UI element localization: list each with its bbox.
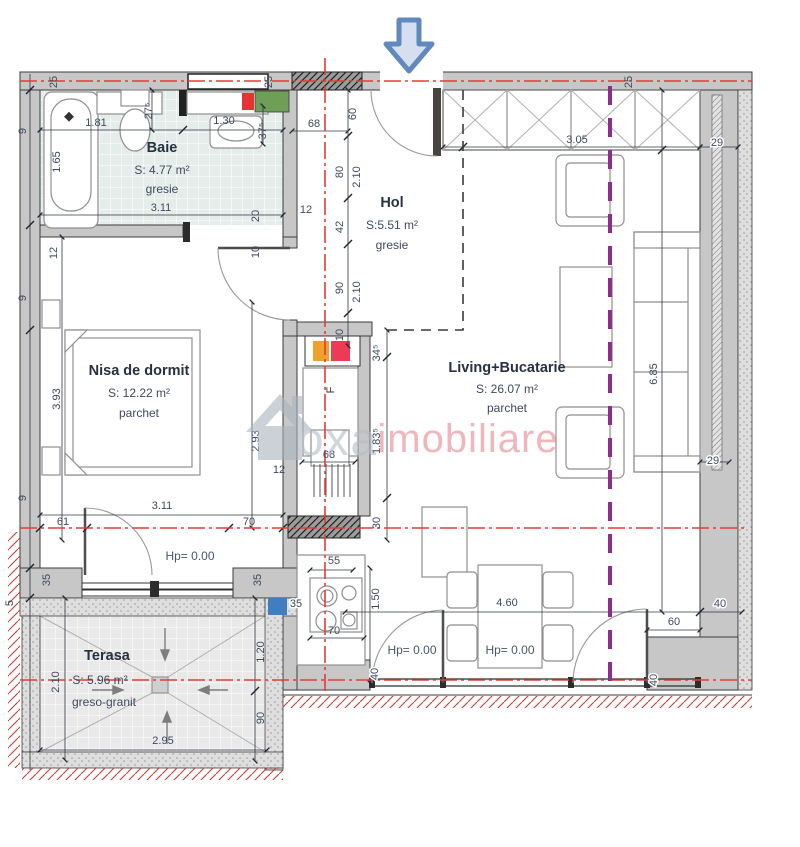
room-area-terasa: S: 5.96 m² (72, 673, 127, 687)
dim-label: 3.11 (152, 500, 173, 512)
room-area-baie: S: 4.77 m² (134, 163, 189, 177)
dim-label: 68 (308, 118, 320, 130)
dim-label: 9 (17, 295, 29, 301)
dim-label: 3.05 (566, 134, 587, 146)
dim-label: 90 (334, 282, 346, 294)
orange-marker (313, 341, 329, 361)
green-marker (255, 91, 289, 112)
dim-label: 35 (41, 574, 53, 586)
room-area-living: S: 26.07 m² (476, 382, 538, 396)
dim-label: 6.85 (648, 363, 660, 384)
dim-label: 27⁵ (143, 103, 155, 120)
floor-plan: F (0, 0, 800, 847)
dim-label: 2.10 (50, 671, 62, 692)
dim-label: 25 (263, 76, 275, 88)
wall-insulation-right (738, 90, 752, 690)
dim-label: 55 (328, 555, 340, 567)
bed (65, 330, 200, 475)
room-name-living: Living+Bucatarie (448, 360, 565, 376)
entrance-door (433, 88, 441, 156)
divider-wall (179, 90, 187, 116)
dim-label: 70 (243, 516, 255, 528)
dim-label: 40 (714, 598, 726, 610)
dim-label: 35 (252, 574, 264, 586)
dim-label: 12 (300, 204, 312, 216)
dim-label: 2.10 (351, 281, 363, 302)
room-area-nisa: S: 12.22 m² (108, 386, 170, 400)
dim-label: 9 (17, 495, 29, 501)
blue-marker (268, 598, 287, 615)
dim-label: 10 (334, 329, 346, 341)
dim-label: 12 (273, 464, 285, 476)
dim-label: 5 (4, 600, 16, 606)
chair (543, 572, 573, 608)
door-jamb (183, 222, 190, 242)
dim-label: 90 (255, 712, 267, 724)
dim-label: 61 (57, 516, 69, 528)
level-label: Hp= 0.00 (165, 549, 214, 563)
dim-label: 1.30 (213, 115, 234, 127)
nightstand (42, 300, 60, 328)
dim-label: 29 (707, 455, 719, 467)
room-name-terasa: Terasa (84, 648, 131, 664)
dim-label: 1.81 (85, 117, 106, 129)
tv-stand (560, 267, 612, 367)
watermark-pink-text: imobiliare (377, 417, 558, 461)
room-floor-nisa: parchet (119, 406, 160, 420)
dim-label: 10 (250, 246, 262, 258)
dim-label: 37⁵ (257, 123, 269, 140)
dim-label: 60 (347, 108, 359, 120)
dim-label: 42 (334, 221, 346, 233)
dim-label: 3.11 (151, 202, 172, 214)
coffee-table (422, 507, 467, 577)
dim-label: 25 (48, 76, 60, 88)
entrance-arrow-icon (386, 20, 432, 71)
watermark-gray-text: oxa (298, 413, 378, 465)
dim-label: 60 (668, 616, 680, 628)
dim-label: 2.95 (152, 735, 173, 747)
radiator (314, 464, 350, 497)
room-floor-hol: gresie (376, 238, 409, 252)
dim-label: 9 (17, 128, 29, 134)
dim-label: 3.93 (51, 388, 63, 409)
dim-label: 12 (48, 247, 60, 259)
dim-label: 25 (623, 76, 635, 88)
sofa (634, 232, 700, 472)
room-name-baie: Baie (147, 140, 178, 156)
dim-label: 40 (648, 674, 660, 686)
dim-label: 70 (328, 625, 340, 637)
dim-label: 35 (290, 598, 302, 610)
nightstand (42, 447, 60, 475)
dim-label: 1.20 (255, 641, 267, 662)
dim-label: 2.10 (351, 166, 363, 187)
chair (447, 625, 477, 661)
dim-label: 4.60 (496, 597, 517, 609)
shaft-f-label: F (325, 386, 337, 393)
red-marker (242, 93, 254, 110)
dim-label: 34⁵ (371, 345, 383, 362)
room-name-nisa: Nisa de dormit (89, 363, 190, 379)
wall-hatch-shaft (288, 516, 360, 538)
level-label: Hp= 0.00 (485, 643, 534, 657)
dim-label: 80 (334, 166, 346, 178)
kitchen-counter (297, 555, 365, 665)
dim-label: 1.65 (51, 151, 63, 172)
room-floor-living: parchet (487, 401, 528, 415)
chair (543, 625, 573, 661)
floor-plan-svg: F (0, 0, 800, 847)
dim-label: 20 (250, 210, 262, 222)
pink-marker (331, 341, 350, 361)
dim-label: 30 (371, 517, 383, 529)
room-name-hol: Hol (380, 195, 403, 211)
room-floor-terasa: greso-granit (72, 695, 137, 709)
level-label: Hp= 0.00 (387, 643, 436, 657)
dim-label: 1.50 (370, 588, 382, 609)
chair (447, 572, 477, 608)
room-floor-baie: gresie (146, 182, 179, 196)
dim-label: 40 (369, 668, 381, 680)
room-area-hol: S:5.51 m² (366, 218, 418, 232)
dim-label: 29 (711, 137, 723, 149)
